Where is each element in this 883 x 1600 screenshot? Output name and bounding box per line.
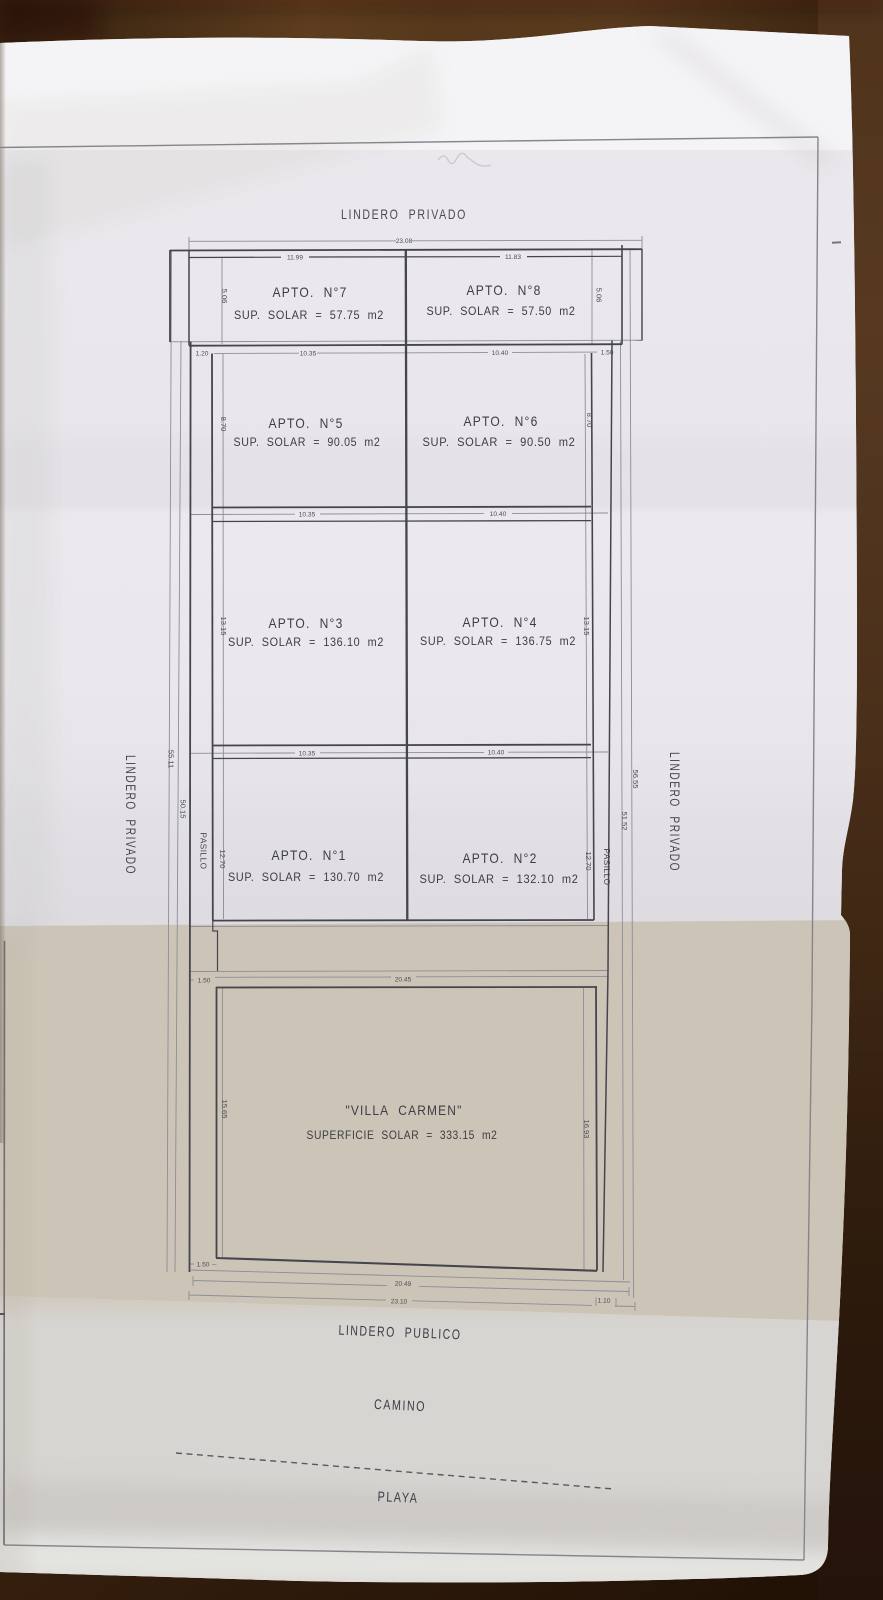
svg-text:APTO. N°6: APTO. N°6 xyxy=(464,413,539,429)
svg-text:SUP. SOLAR = 136.75 m2: SUP. SOLAR = 136.75 m2 xyxy=(420,635,576,648)
svg-text:SUP. SOLAR = 132.10 m2: SUP. SOLAR = 132.10 m2 xyxy=(420,873,579,886)
svg-text:56.55: 56.55 xyxy=(631,769,640,788)
svg-text:8.70: 8.70 xyxy=(219,417,228,432)
svg-text:1.50: 1.50 xyxy=(197,1262,210,1269)
svg-text:16.93: 16.93 xyxy=(582,1119,591,1138)
svg-text:APTO. N°1: APTO. N°1 xyxy=(272,847,347,863)
svg-text:10.35: 10.35 xyxy=(300,351,317,358)
svg-text:APTO. N°5: APTO. N°5 xyxy=(269,415,344,431)
svg-text:SUP. SOLAR = 90.05 m2: SUP. SOLAR = 90.05 m2 xyxy=(234,436,381,449)
svg-text:CAMINO: CAMINO xyxy=(374,1396,427,1414)
svg-text:SUP. SOLAR = 57.50 m2: SUP. SOLAR = 57.50 m2 xyxy=(427,305,576,318)
svg-text:13.15: 13.15 xyxy=(582,616,591,635)
svg-text:11.83: 11.83 xyxy=(505,254,521,261)
svg-text:PASILLO: PASILLO xyxy=(199,832,208,869)
svg-text:55.11: 55.11 xyxy=(167,750,176,768)
svg-text:1.50: 1.50 xyxy=(601,350,614,357)
svg-text:SUP. SOLAR = 57.75 m2: SUP. SOLAR = 57.75 m2 xyxy=(234,309,384,322)
svg-text:5.06: 5.06 xyxy=(220,289,229,304)
svg-text:23.08: 23.08 xyxy=(396,238,413,245)
svg-text:SUPERFICIE SOLAR = 333.15: SUPERFICIE SOLAR = 333.15 m2 xyxy=(307,1128,498,1142)
svg-text:12.70: 12.70 xyxy=(218,849,227,868)
svg-text:15.65: 15.65 xyxy=(220,1099,229,1118)
svg-text:10.40: 10.40 xyxy=(492,350,509,357)
svg-text:5.06: 5.06 xyxy=(595,288,604,303)
svg-text:11.99: 11.99 xyxy=(287,255,303,262)
svg-text:20.45: 20.45 xyxy=(395,977,412,984)
svg-text:23.10: 23.10 xyxy=(391,1298,408,1305)
svg-text:APTO. N°4: APTO. N°4 xyxy=(463,614,538,630)
svg-text:APTO. N°7: APTO. N°7 xyxy=(273,284,348,300)
svg-text:LINDERO PRIVADO: LINDERO PRIVADO xyxy=(123,755,138,875)
svg-text:10.35: 10.35 xyxy=(299,750,316,757)
svg-text:SUP. SOLAR = 136.10 m2: SUP. SOLAR = 136.10 m2 xyxy=(228,636,384,649)
svg-text:1.20: 1.20 xyxy=(196,351,209,358)
svg-text:10.35: 10.35 xyxy=(299,512,316,519)
svg-text:LINDERO PRIVADO: LINDERO PRIVADO xyxy=(341,207,467,222)
svg-text:SUP. SOLAR = 130.70 m2: SUP. SOLAR = 130.70 m2 xyxy=(228,871,384,884)
svg-text:1.10: 1.10 xyxy=(597,1298,610,1305)
svg-text:PLAYA: PLAYA xyxy=(377,1488,419,1506)
svg-text:APTO. N°8: APTO. N°8 xyxy=(467,282,542,298)
svg-text:10.40: 10.40 xyxy=(490,511,507,518)
svg-text:PASILLO: PASILLO xyxy=(602,848,611,885)
svg-text:SUP. SOLAR = 90.50 m2: SUP. SOLAR = 90.50 m2 xyxy=(423,436,576,449)
svg-text:8.70: 8.70 xyxy=(585,413,594,428)
svg-text:20.49: 20.49 xyxy=(395,1281,412,1288)
svg-text:10.40: 10.40 xyxy=(488,750,505,757)
svg-text:APTO. N°3: APTO. N°3 xyxy=(269,615,344,631)
svg-text:"VILLA CARMEN": "VILLA CARMEN" xyxy=(346,1103,463,1119)
svg-text:50.15: 50.15 xyxy=(179,799,188,818)
svg-text:LINDERO PRIVADO: LINDERO PRIVADO xyxy=(667,752,682,872)
svg-text:APTO. N°2: APTO. N°2 xyxy=(463,850,538,866)
svg-text:1.50: 1.50 xyxy=(198,978,211,985)
svg-text:13.15: 13.15 xyxy=(219,616,228,635)
svg-text:12.70: 12.70 xyxy=(584,851,593,870)
svg-text:51.52: 51.52 xyxy=(620,811,629,830)
